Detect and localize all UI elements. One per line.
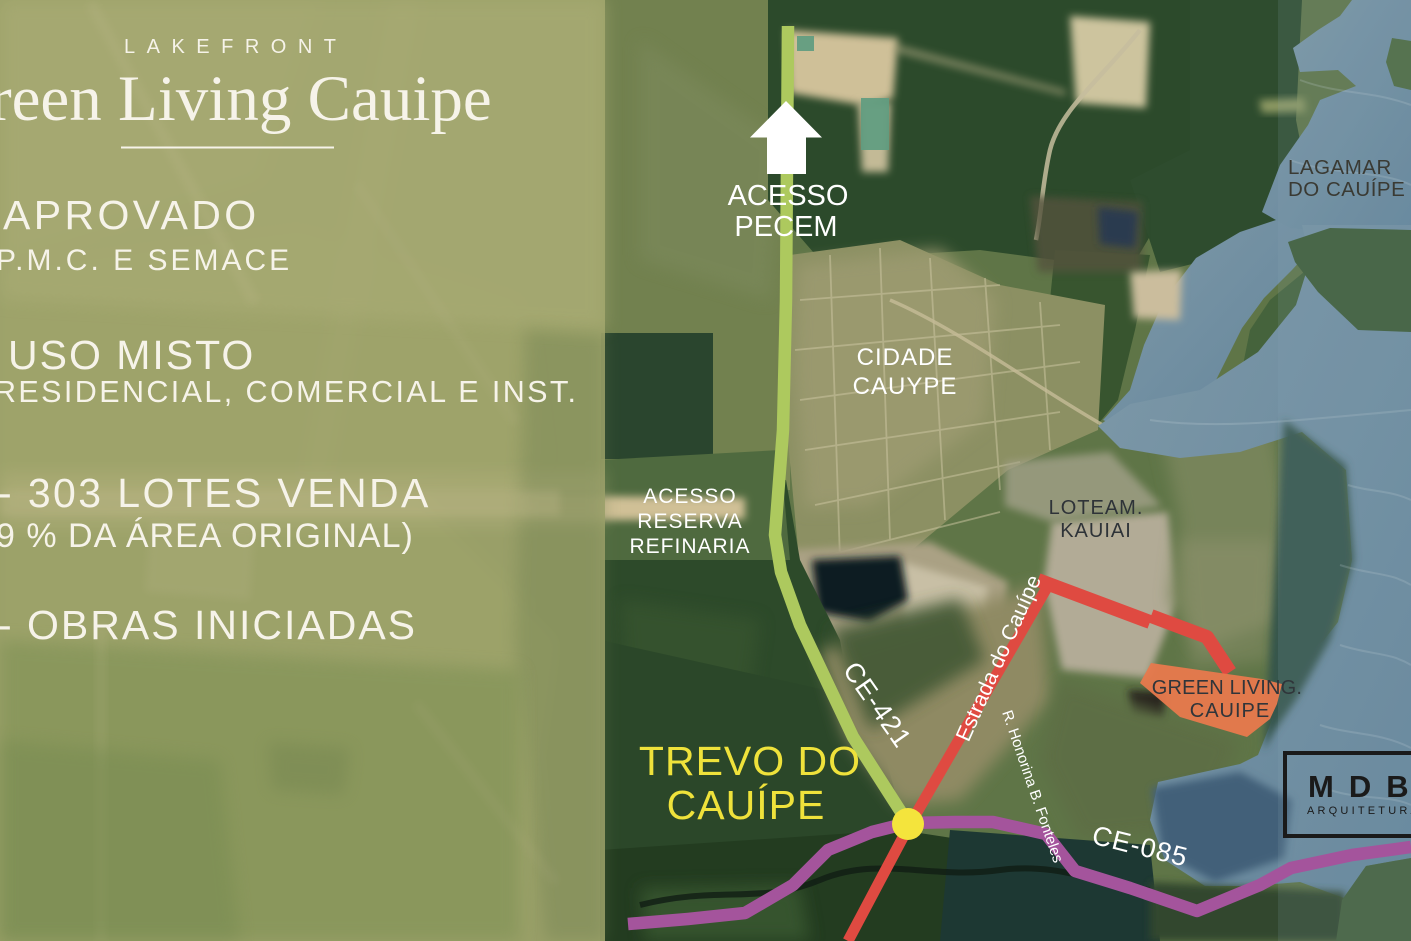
svg-text:USO MISTO: USO MISTO: [8, 332, 255, 378]
svg-text:ACESSO: ACESSO: [728, 180, 849, 212]
svg-text:DO CAUÍPE: DO CAUÍPE: [1288, 178, 1405, 201]
svg-text:APROVADO: APROVADO: [3, 192, 260, 238]
svg-text:LOTEAM.: LOTEAM.: [1049, 497, 1144, 519]
svg-text:KAUIAI: KAUIAI: [1060, 520, 1132, 542]
svg-text:Green Living Cauipe: Green Living Cauipe: [0, 63, 492, 135]
svg-text:ACESSO: ACESSO: [643, 485, 737, 508]
svg-text:RESERVA: RESERVA: [637, 510, 742, 533]
svg-text:TREVO DO: TREVO DO: [639, 738, 861, 784]
svg-text:- OBRAS INICIADAS: - OBRAS INICIADAS: [0, 602, 417, 648]
svg-text:ARQUITETURA: ARQUITETURA: [1307, 805, 1411, 817]
svg-text:REFINARIA: REFINARIA: [629, 535, 750, 558]
svg-text:CAUÍPE: CAUÍPE: [667, 782, 826, 828]
svg-text:9 % DA ÁREA ORIGINAL): 9 % DA ÁREA ORIGINAL): [0, 517, 414, 555]
svg-text:MDB: MDB: [1308, 769, 1411, 804]
svg-text:GREEN LIVING.: GREEN LIVING.: [1152, 677, 1302, 699]
svg-text:- 303 LOTES VENDA: - 303 LOTES VENDA: [0, 470, 431, 516]
svg-text:PECEM: PECEM: [734, 211, 837, 243]
svg-text:LAGAMAR: LAGAMAR: [1288, 156, 1392, 179]
svg-text:RESIDENCIAL, COMERCIAL E INST.: RESIDENCIAL, COMERCIAL E INST.: [0, 375, 578, 409]
svg-text:CIDADE: CIDADE: [857, 344, 954, 371]
svg-text:LAKEFRONT: LAKEFRONT: [124, 36, 348, 58]
svg-text:CAUYPE: CAUYPE: [853, 373, 958, 400]
svg-text:P.M.C. E SEMACE: P.M.C. E SEMACE: [0, 244, 292, 277]
svg-text:CAUIPE: CAUIPE: [1190, 700, 1270, 722]
